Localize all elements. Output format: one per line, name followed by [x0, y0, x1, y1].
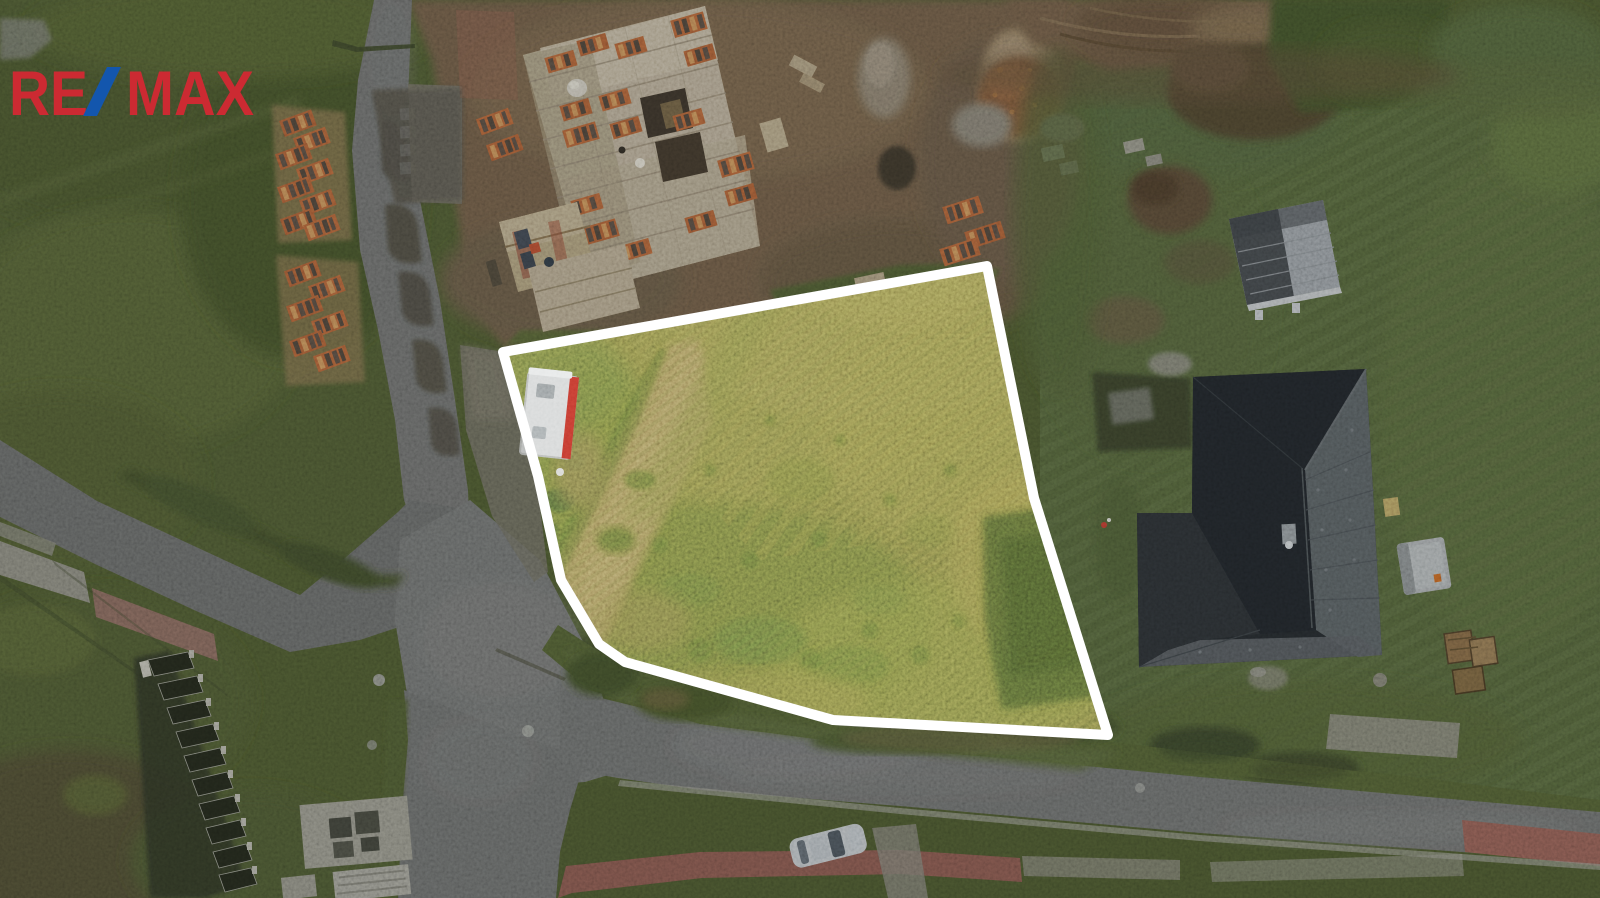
svg-text:MAX: MAX — [126, 59, 254, 129]
svg-text:RE: RE — [9, 59, 88, 129]
